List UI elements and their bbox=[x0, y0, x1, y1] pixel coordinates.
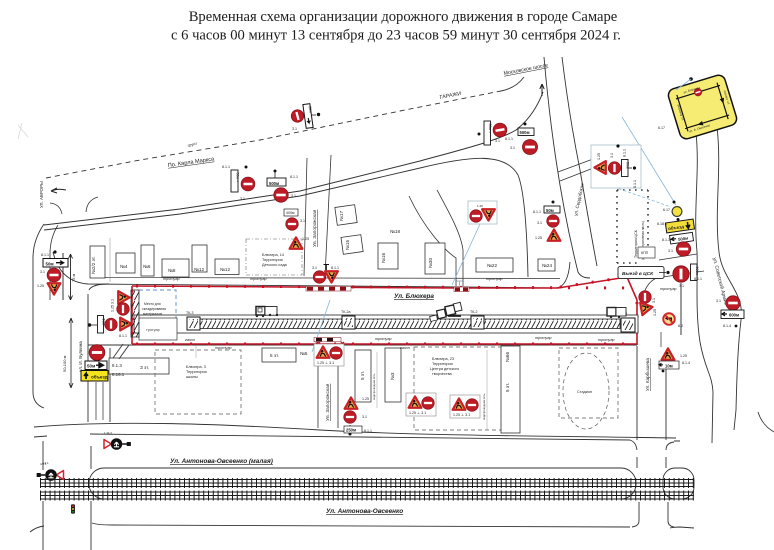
svg-text:Стадион: Стадион bbox=[577, 390, 592, 394]
svg-text:ТК-2: ТК-2 bbox=[470, 310, 477, 314]
svg-text:8.16.1: 8.16.1 bbox=[112, 372, 125, 377]
svg-text:водопроводная сеть: водопроводная сеть bbox=[372, 373, 376, 400]
svg-text:8.1.1: 8.1.1 bbox=[222, 165, 230, 169]
svg-text:№4: №4 bbox=[120, 264, 128, 269]
svg-text:6.18.1: 6.18.1 bbox=[657, 222, 667, 226]
svg-text:ТК-3: ТК-3 bbox=[186, 311, 193, 315]
svg-text:1.25 3.1: 1.25 3.1 bbox=[111, 299, 115, 312]
svg-text:3.1: 3.1 bbox=[716, 299, 721, 303]
svg-text:50м→: 50м→ bbox=[488, 124, 492, 134]
svg-text:тротуар: тротуар bbox=[598, 338, 615, 342]
svg-text:1.34.3: 1.34.3 bbox=[104, 431, 112, 435]
svg-text:600м: 600м bbox=[695, 267, 699, 276]
svg-text:3.1: 3.1 bbox=[240, 197, 245, 201]
svg-text:8.1.1: 8.1.1 bbox=[633, 180, 637, 188]
svg-text:50-100 м: 50-100 м bbox=[62, 355, 67, 372]
svg-text:600м: 600м bbox=[729, 313, 739, 318]
svg-text:8.1.1: 8.1.1 bbox=[119, 334, 127, 338]
svg-text:50м: 50м bbox=[87, 364, 96, 369]
svg-text:1.25: 1.25 bbox=[597, 153, 601, 160]
svg-text:50м→: 50м→ bbox=[236, 173, 240, 183]
svg-text:3.1: 3.1 bbox=[312, 266, 317, 270]
svg-text:Ул. Запорожская: Ул. Запорожская bbox=[312, 209, 318, 247]
svg-text:складирования: складирования bbox=[142, 307, 166, 311]
svg-text:тротуар: тротуар bbox=[486, 277, 503, 281]
svg-text:Территория: Территория bbox=[262, 258, 283, 262]
svg-text:8.1.1: 8.1.1 bbox=[505, 137, 513, 141]
svg-text:3.1: 3.1 bbox=[510, 146, 515, 150]
svg-text:1.25: 1.25 bbox=[680, 354, 687, 358]
svg-text:6.17: 6.17 bbox=[663, 208, 670, 212]
svg-text:ул. И. Булкина: ул. И. Булкина bbox=[78, 341, 83, 372]
svg-text:тротуар: тротуар bbox=[215, 346, 232, 350]
svg-text:УЛ. АВРОРЫ: УЛ. АВРОРЫ bbox=[39, 181, 44, 208]
svg-text:тротуар: тротуар bbox=[146, 328, 160, 332]
svg-text:3.1: 3.1 bbox=[292, 127, 297, 131]
svg-text:№12: №12 bbox=[220, 267, 230, 272]
svg-text:3.1: 3.1 bbox=[300, 219, 305, 223]
svg-text:500м: 500м bbox=[269, 181, 279, 186]
svg-text:школы: школы bbox=[186, 375, 198, 379]
svg-text:№16: №16 bbox=[381, 253, 386, 263]
svg-text:№22: №22 bbox=[487, 263, 497, 268]
svg-text:8.1.1: 8.1.1 bbox=[694, 277, 702, 281]
svg-text:№2/2 эт.: №2/2 эт. bbox=[91, 256, 96, 274]
svg-text:400м: 400м bbox=[286, 211, 295, 215]
svg-text:Ул. Блюхера: Ул. Блюхера bbox=[394, 293, 434, 300]
svg-text:1.25 ⊥ 3.1: 1.25 ⊥ 3.1 bbox=[453, 413, 470, 417]
svg-text:1.25 ⊥ 3.1: 1.25 ⊥ 3.1 bbox=[409, 411, 426, 415]
svg-text:8.1.1: 8.1.1 bbox=[331, 266, 339, 270]
svg-text:Территория: Территория bbox=[186, 370, 207, 374]
svg-text:Блюхера, 23: Блюхера, 23 bbox=[432, 357, 454, 361]
svg-text:Ул. Карбышева: Ул. Карбышева bbox=[645, 358, 650, 391]
svg-text:5 эт.: 5 эт. bbox=[360, 371, 365, 380]
svg-text:5 эт.: 5 эт. bbox=[505, 383, 510, 392]
svg-text:№24: №24 bbox=[542, 263, 552, 268]
svg-text:1.25 ⊥ 3.1: 1.25 ⊥ 3.1 bbox=[317, 361, 334, 365]
svg-text:Блюхера, 14: Блюхера, 14 bbox=[262, 253, 284, 257]
svg-text:3.1: 3.1 bbox=[362, 415, 367, 419]
svg-text:Ул. Антонова-Овсеенко: Ул. Антонова-Овсеенко bbox=[326, 508, 403, 515]
svg-text:КПП: КПП bbox=[641, 251, 649, 255]
svg-text:тротуар: тротуар bbox=[163, 277, 180, 281]
svg-text:50м: 50м bbox=[546, 208, 554, 213]
svg-text:№12: №12 bbox=[194, 267, 204, 272]
svg-text:3.1: 3.1 bbox=[668, 249, 673, 253]
svg-text:8.1.1: 8.1.1 bbox=[290, 175, 298, 179]
svg-text:50м: 50м bbox=[46, 262, 54, 267]
svg-text:3.1: 3.1 bbox=[652, 298, 656, 303]
svg-text:8.2: 8.2 bbox=[678, 324, 683, 328]
svg-text:3.1: 3.1 bbox=[495, 139, 500, 143]
svg-text:8.1.4: 8.1.4 bbox=[723, 324, 731, 328]
svg-text:газон: газон bbox=[185, 338, 196, 342]
svg-text:Территория: Территория bbox=[432, 362, 453, 366]
svg-text:№8: №8 bbox=[168, 268, 176, 273]
svg-text:тротуар: тротуар bbox=[535, 336, 552, 340]
svg-text:250м: 250м bbox=[346, 428, 356, 433]
svg-text:творчества: творчества bbox=[432, 372, 453, 376]
svg-text:8.1.1: 8.1.1 bbox=[623, 149, 627, 157]
svg-text:тротуар: тротуар bbox=[660, 287, 677, 291]
svg-text:№6: №6 bbox=[143, 264, 151, 269]
svg-text:75 м: 75 м bbox=[71, 273, 76, 282]
svg-text:50м: 50м bbox=[102, 319, 106, 326]
svg-text:3.1: 3.1 bbox=[537, 221, 542, 225]
svg-text:6.17: 6.17 bbox=[658, 126, 665, 130]
svg-text:1.25: 1.25 bbox=[653, 309, 657, 316]
svg-text:№66: №66 bbox=[505, 352, 510, 362]
svg-text:тротуар: тротуар bbox=[375, 337, 392, 341]
svg-text:№17: №17 bbox=[339, 211, 344, 221]
svg-text:1.25: 1.25 bbox=[535, 236, 542, 240]
svg-text:№30: №30 bbox=[428, 258, 433, 268]
svg-text:8.1.3: 8.1.3 bbox=[662, 238, 670, 242]
svg-text:1.25: 1.25 bbox=[37, 284, 44, 288]
svg-text:8.1.3: 8.1.3 bbox=[112, 363, 122, 368]
svg-text:Выезд в ЦСК: Выезд в ЦСК bbox=[622, 271, 654, 277]
svg-text:Место для: Место для bbox=[144, 302, 161, 306]
svg-text:Блюхера, 3: Блюхера, 3 bbox=[186, 365, 206, 369]
svg-text:8.1.1: 8.1.1 bbox=[533, 210, 541, 214]
svg-text:4.2.1: 4.2.1 bbox=[40, 462, 47, 466]
svg-text:1.25: 1.25 bbox=[477, 204, 483, 208]
svg-text:объезд: объезд bbox=[91, 374, 108, 380]
svg-text:материалов: материалов bbox=[143, 312, 162, 316]
svg-text:З эт.: З эт. bbox=[140, 365, 149, 370]
svg-text:№15: №15 bbox=[345, 240, 350, 250]
svg-text:1.25: 1.25 bbox=[362, 397, 369, 401]
svg-text:8.1.1: 8.1.1 bbox=[41, 253, 49, 257]
svg-text:3.1: 3.1 bbox=[291, 194, 296, 198]
svg-text:ТК-2а: ТК-2а bbox=[341, 310, 350, 314]
svg-text:Территория ЦСК: Территория ЦСК bbox=[634, 229, 638, 258]
svg-text:тротуар: тротуар bbox=[250, 277, 267, 281]
svg-text:500м: 500м bbox=[520, 130, 530, 135]
svg-text:Временная схема организации до: Временная схема организации дорожного дв… bbox=[189, 9, 618, 25]
svg-text:10м: 10м bbox=[665, 364, 673, 369]
svg-text:8.1.4: 8.1.4 bbox=[682, 361, 690, 365]
svg-text:водопроводная сеть: водопроводная сеть bbox=[482, 393, 486, 420]
svg-text:газон: газон bbox=[400, 346, 411, 350]
svg-text:Ул. Антонова-Овсеенко (малая): Ул. Антонова-Овсеенко (малая) bbox=[170, 458, 273, 465]
svg-text:№5: №5 bbox=[300, 351, 308, 356]
svg-text:8.1.1: 8.1.1 bbox=[364, 429, 372, 433]
svg-text:№3: №3 bbox=[390, 372, 395, 380]
svg-text:3.1: 3.1 bbox=[679, 284, 684, 288]
svg-text:1.25: 1.25 bbox=[302, 237, 309, 241]
svg-text:№18: №18 bbox=[390, 229, 400, 234]
svg-text:5 эт.: 5 эт. bbox=[270, 353, 279, 358]
svg-text:3.1: 3.1 bbox=[610, 153, 614, 158]
svg-text:Центра детского: Центра детского bbox=[430, 367, 459, 371]
svg-text:Ул. Запорожская: Ул. Запорожская bbox=[325, 383, 331, 421]
svg-text:Детского сада: Детского сада bbox=[262, 263, 288, 267]
svg-text:с 6 часов 00 минут 13 сентября: с 6 часов 00 минут 13 сентября до 23 час… bbox=[171, 28, 621, 44]
svg-text:3.1: 3.1 bbox=[40, 270, 45, 274]
